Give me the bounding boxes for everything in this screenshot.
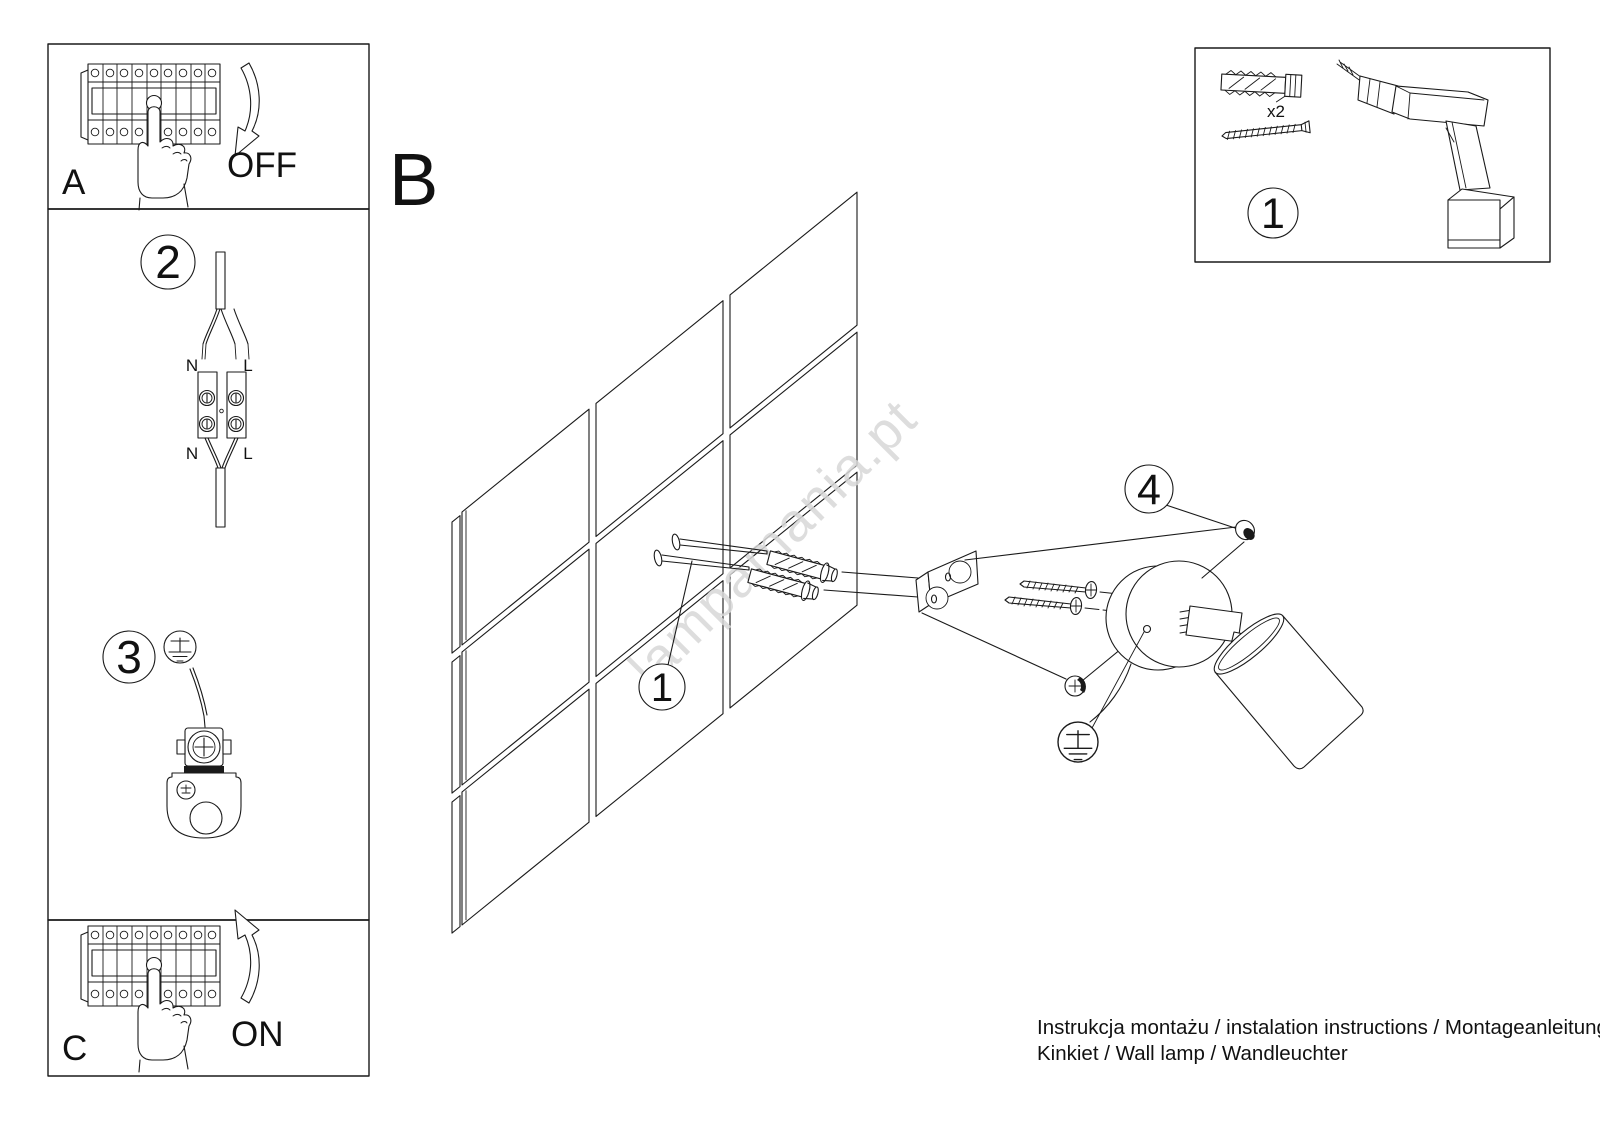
leader-line: [965, 527, 1236, 560]
pivot-bolt-icon: [1202, 517, 1258, 578]
earth-wire: [190, 668, 207, 727]
footer-line-1: Instrukcja montażu / instalation instruc…: [1037, 1016, 1600, 1039]
callout-4-number: 4: [1137, 466, 1161, 514]
mounting-screw-icon: [1005, 597, 1117, 615]
plug-quantity-label: x2: [1267, 102, 1285, 121]
wire-label-n-bottom: N: [186, 444, 198, 463]
callout-1-number: 1: [651, 666, 673, 710]
wire-label-l-bottom: L: [243, 444, 252, 463]
panel-a-power-off: OFF A: [48, 44, 369, 210]
hardware-callout-number: 1: [1261, 190, 1285, 238]
wire-label-n-top: N: [186, 356, 198, 375]
terminal-block-icon: [198, 372, 246, 438]
mounting-bracket-icon: [916, 551, 978, 612]
step-2-number: 2: [155, 236, 181, 288]
step-3-number: 3: [116, 631, 142, 683]
instruction-sheet: OFF A 2 N L N: [0, 0, 1600, 1131]
footer: Instrukcja montażu / instalation instruc…: [1037, 1016, 1600, 1065]
step-3-grounding: 3: [103, 631, 241, 838]
off-label: OFF: [227, 146, 297, 185]
section-b-label: B: [389, 138, 438, 221]
panel-c-power-on: ON C: [48, 910, 369, 1076]
hardware-kit-box: x2 1: [1195, 48, 1550, 262]
alignment-line: [824, 590, 918, 597]
step-2-wiring: 2 N L N L: [141, 235, 253, 527]
screw-icon: [1221, 121, 1310, 142]
panel-a-label: A: [62, 163, 86, 202]
alignment-line: [842, 572, 918, 578]
callout-4: 4: [1125, 465, 1235, 528]
earth-terminal-icon: [177, 728, 231, 773]
footer-line-2: Kinkiet / Wall lamp / Wandleuchter: [1037, 1042, 1348, 1065]
wall-plug-icon: [1220, 70, 1301, 103]
curved-arrow-down-icon: [235, 63, 259, 156]
panel-wiring-steps: 2 N L N L: [48, 209, 369, 920]
mains-cable-icon: [202, 252, 249, 359]
canopy-rear-icon: [167, 773, 241, 838]
cordless-drill-icon: [1337, 60, 1514, 248]
on-label: ON: [231, 1015, 284, 1054]
curved-arrow-up-icon: [235, 910, 259, 1003]
mains-cable-out-icon: [205, 438, 238, 527]
watermark: lampamania.pt: [618, 388, 929, 699]
leader-line: [922, 613, 1066, 679]
panel-c-label: C: [62, 1029, 87, 1068]
